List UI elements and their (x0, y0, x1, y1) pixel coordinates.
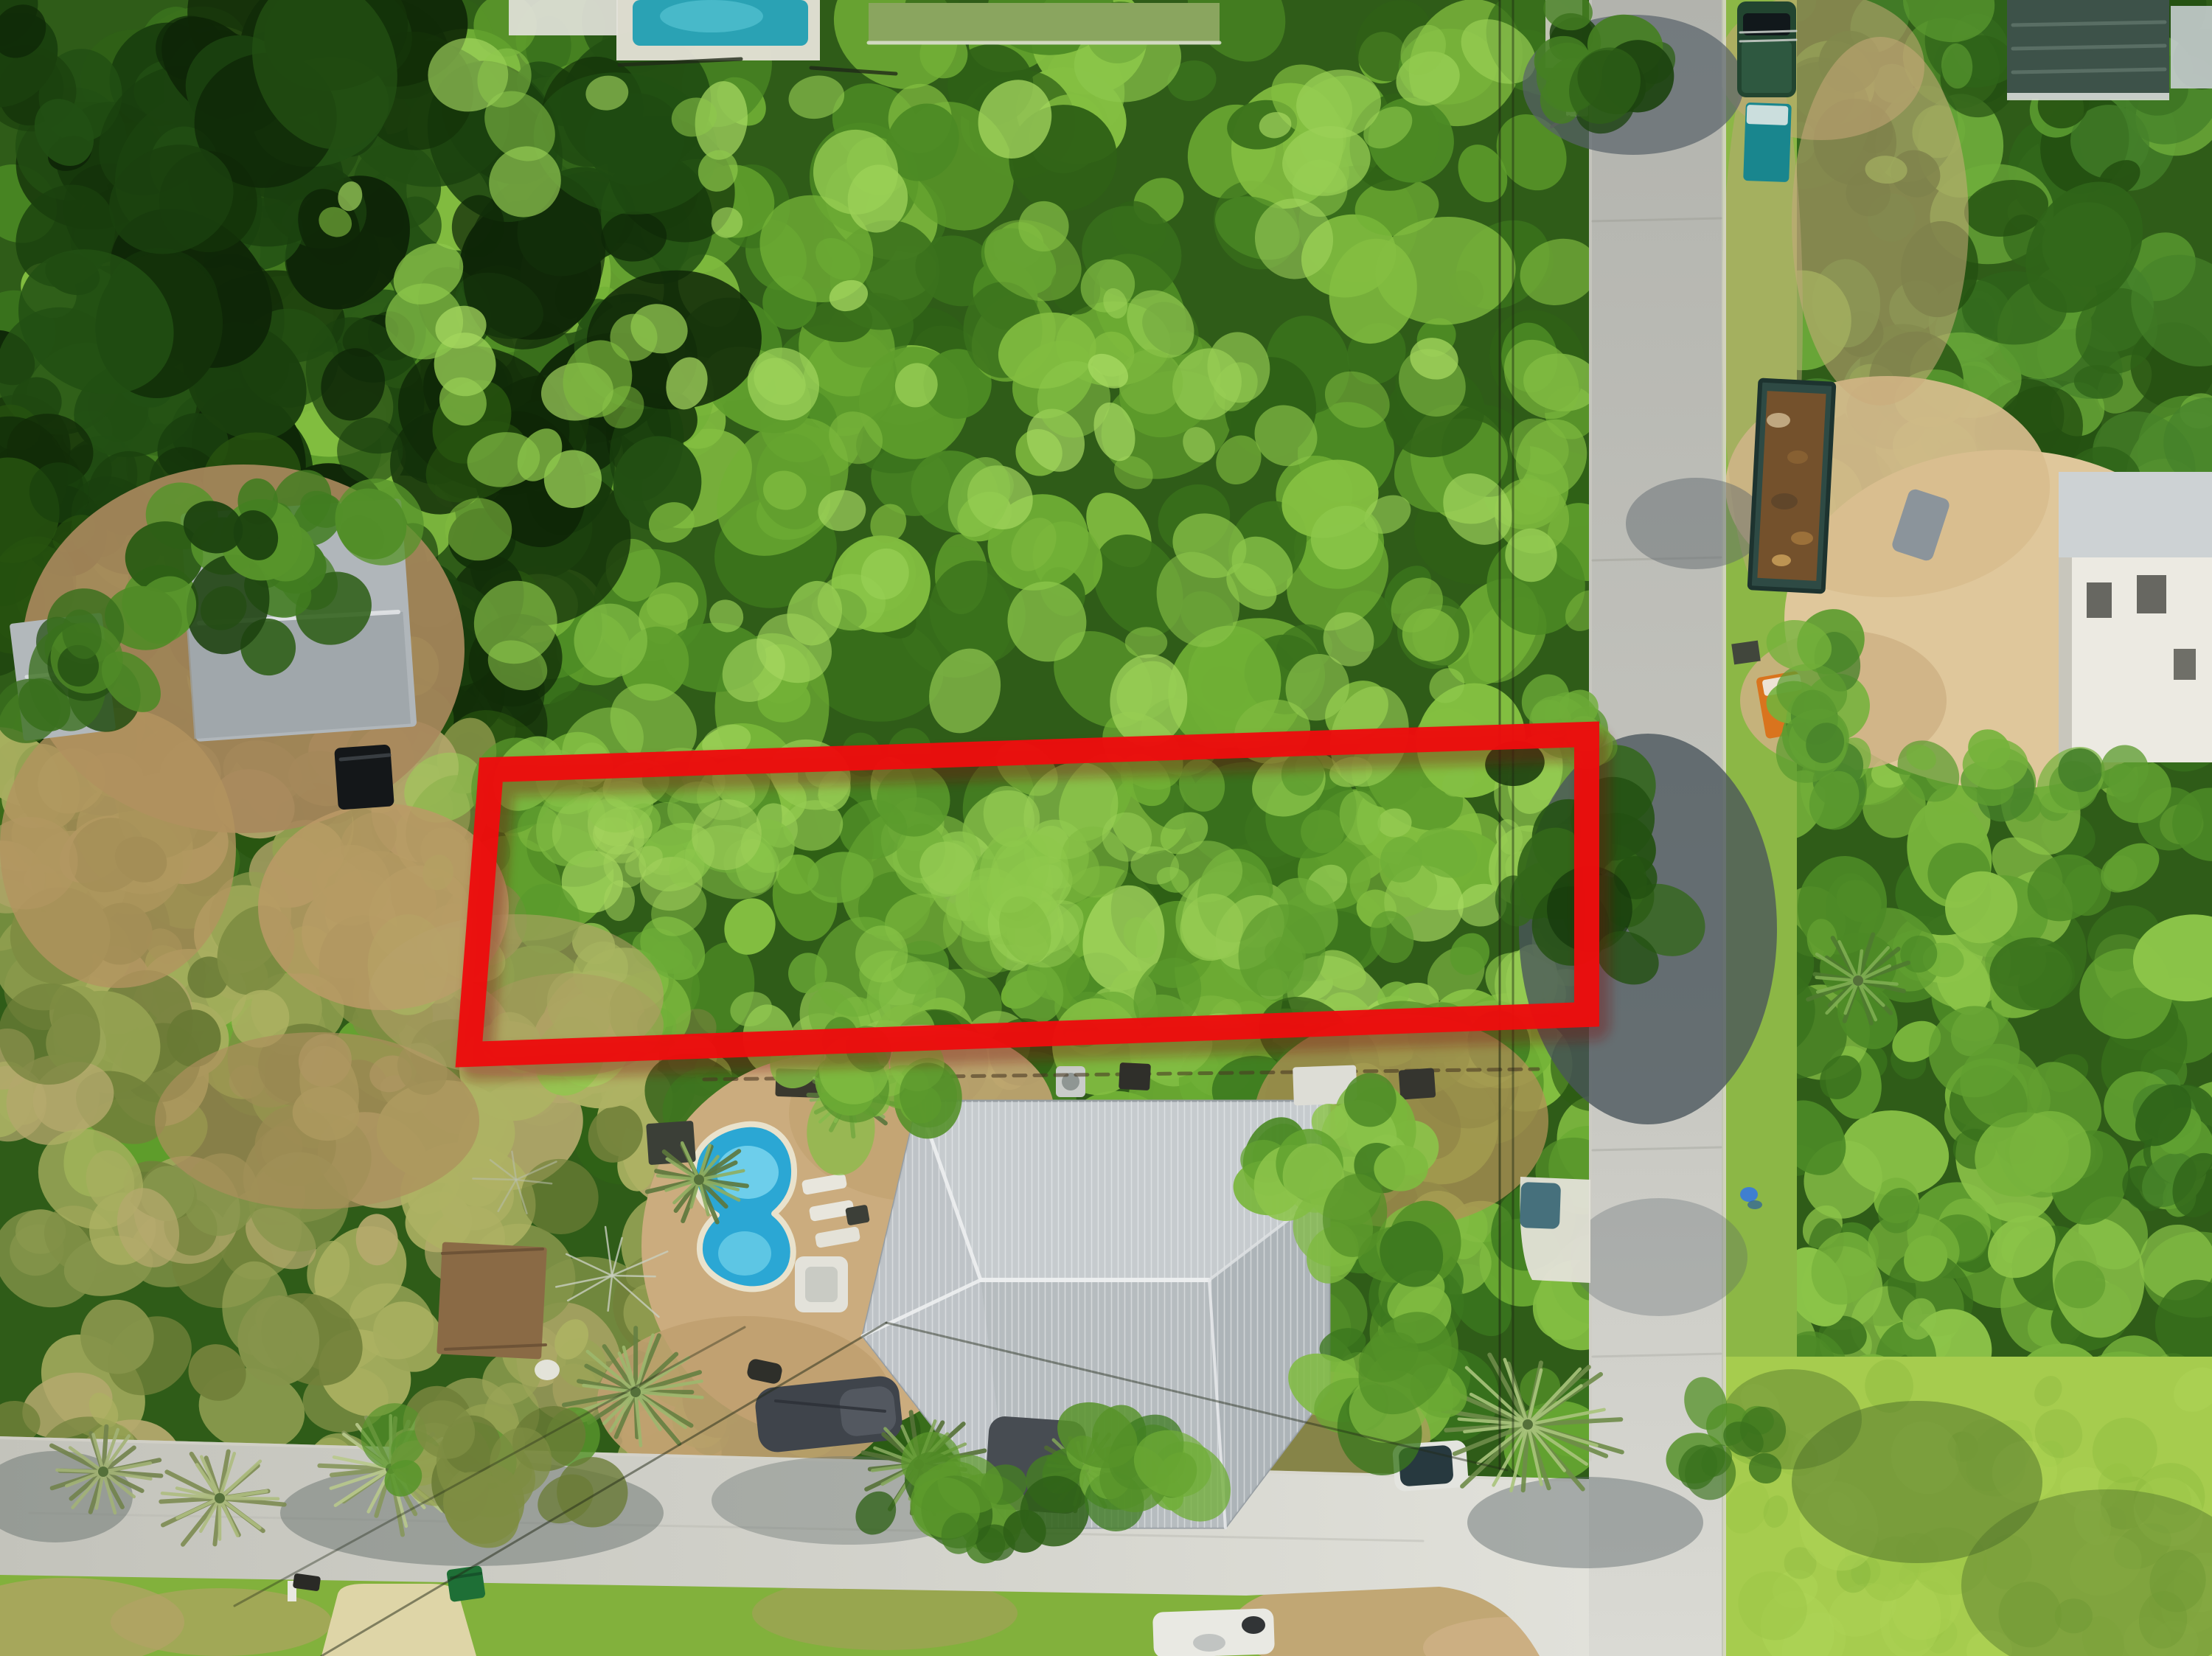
dead-branches (473, 1179, 517, 1180)
palm-tree-frond (57, 1470, 99, 1472)
dumpster-junk (1767, 413, 1790, 428)
aerial-photo-canvas (0, 0, 2212, 1656)
van-detail (1242, 1616, 1265, 1634)
tree-shadow-road (1571, 1198, 1747, 1316)
culvert-grate (1731, 641, 1761, 665)
satellite-dish (535, 1360, 560, 1380)
pickup-bed (1742, 41, 1792, 93)
dirt-patch (0, 708, 236, 988)
pool-highlight (717, 1146, 779, 1199)
palm-tree-frond (224, 1498, 278, 1499)
construction-shadow (2059, 557, 2072, 762)
palm-tree-crown (98, 1467, 108, 1477)
palm-tree-crown (694, 1175, 704, 1185)
ladder-rack (1740, 31, 1796, 32)
van-detail (1193, 1634, 1225, 1652)
dumpster-junk (1772, 554, 1791, 566)
porch-fascia (2007, 93, 2169, 100)
tree-shadow-road (1467, 1477, 1703, 1568)
dumpster-junk (1787, 450, 1808, 464)
tree-shadow-road (1626, 478, 1766, 569)
ladder-rack (1740, 40, 1796, 41)
construction-house-roof (2059, 472, 2212, 560)
canopy-blob (1125, 627, 1167, 658)
palm-tree-crown (1523, 1419, 1533, 1430)
construction-window (2137, 575, 2166, 613)
hot-tub-water (805, 1267, 838, 1302)
car-teal (1520, 1182, 1561, 1229)
construction-window (2174, 649, 2196, 680)
wood-deck (437, 1242, 547, 1359)
covered-boat-hump (838, 1385, 897, 1437)
dead-branches (612, 1276, 655, 1276)
grass-tan-patch (111, 1588, 332, 1656)
person-blue (1740, 1187, 1758, 1202)
yard-item (1399, 1068, 1436, 1099)
yard-item (1119, 1062, 1151, 1090)
patio-chair (845, 1205, 870, 1226)
metal-roof-glimpse (2171, 6, 2212, 88)
green-roof-building (869, 3, 1220, 44)
neighbor-pool-light (660, 0, 763, 32)
dumpster-junk (1771, 493, 1798, 509)
dumpster-junk (1791, 532, 1813, 545)
porta-potty-teal-top (1747, 105, 1789, 125)
construction-window (2087, 582, 2112, 618)
aerial-photo (0, 0, 2212, 1656)
palm-tree-crown (215, 1493, 225, 1503)
person-blue-shadow (1747, 1200, 1762, 1209)
palm-tree-crown (1853, 975, 1863, 986)
pool-highlight (718, 1231, 771, 1276)
white-deck (509, 0, 618, 35)
